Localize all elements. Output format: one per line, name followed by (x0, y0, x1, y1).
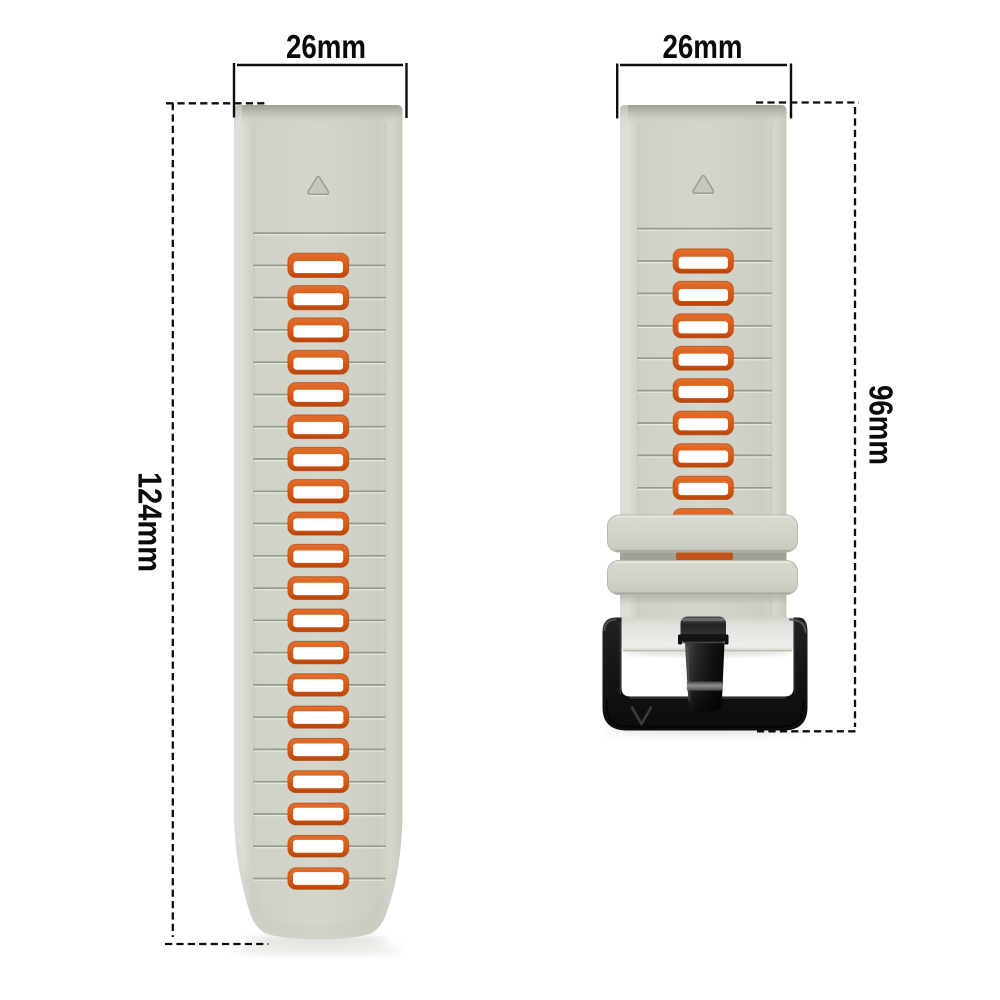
svg-text:26mm: 26mm (286, 28, 366, 65)
svg-text:124mm: 124mm (132, 472, 169, 572)
svg-text:26mm: 26mm (663, 28, 743, 65)
svg-text:96mm: 96mm (863, 385, 900, 465)
